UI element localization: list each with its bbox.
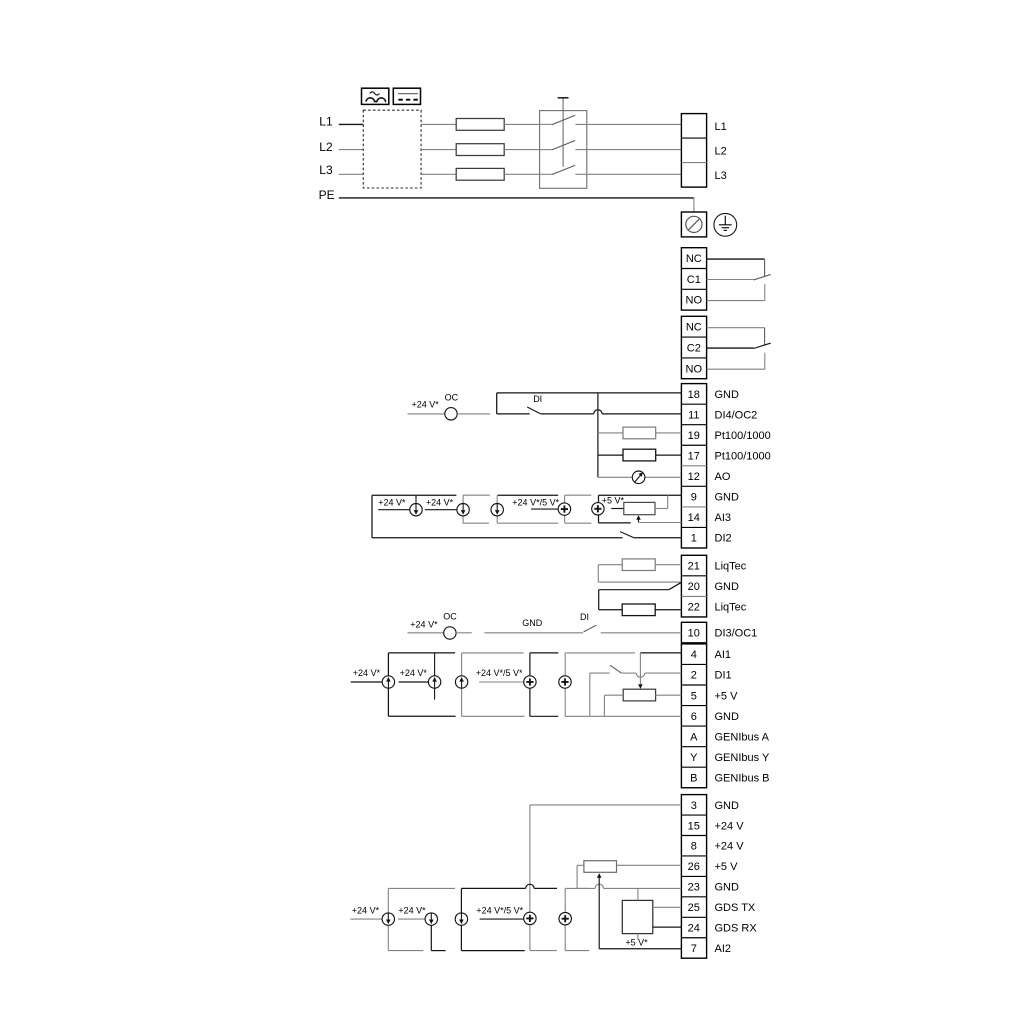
svg-text:AO: AO (715, 471, 731, 483)
svg-text:+24 V: +24 V (715, 841, 745, 853)
svg-text:L2: L2 (715, 145, 727, 157)
svg-text:17: 17 (688, 451, 700, 463)
svg-text:+24 V*: +24 V* (398, 905, 426, 915)
svg-text:25: 25 (688, 902, 700, 914)
svg-text:B: B (690, 773, 697, 785)
svg-text:4: 4 (691, 649, 697, 661)
svg-text:L1: L1 (319, 114, 333, 128)
svg-text:GDS TX: GDS TX (715, 902, 756, 914)
svg-text:7: 7 (691, 943, 697, 955)
svg-text:DI4/OC2: DI4/OC2 (715, 409, 758, 421)
svg-text:DI1: DI1 (715, 670, 732, 682)
svg-text:+5 V*: +5 V* (602, 495, 625, 505)
svg-text:+24 V*: +24 V* (412, 399, 440, 409)
svg-text:1: 1 (691, 533, 697, 545)
svg-text:LiqTec: LiqTec (715, 561, 747, 573)
svg-text:+24 V*: +24 V* (378, 497, 406, 507)
svg-text:L2: L2 (319, 140, 333, 154)
svg-text:Pt100/1000: Pt100/1000 (715, 451, 771, 463)
svg-text:GND: GND (715, 711, 740, 723)
svg-text:11: 11 (688, 409, 699, 421)
svg-text:AI3: AI3 (715, 512, 732, 524)
svg-text:NO: NO (686, 295, 703, 307)
svg-text:C1: C1 (687, 274, 701, 286)
svg-text:26: 26 (688, 861, 700, 873)
svg-text:A: A (690, 731, 698, 743)
svg-text:+5 V: +5 V (715, 690, 739, 702)
svg-text:5: 5 (691, 690, 697, 702)
svg-text:3: 3 (691, 800, 697, 812)
svg-text:NC: NC (686, 322, 702, 334)
svg-text:OC: OC (443, 611, 457, 621)
svg-text:NO: NO (686, 363, 703, 375)
svg-text:Y: Y (690, 752, 698, 764)
svg-text:NC: NC (686, 253, 702, 265)
svg-text:+24 V*: +24 V* (400, 668, 428, 678)
svg-text:L3: L3 (715, 170, 727, 182)
svg-text:AI1: AI1 (715, 649, 732, 661)
svg-text:OC: OC (445, 393, 459, 403)
svg-text:+5 V: +5 V (715, 861, 739, 873)
svg-text:AI2: AI2 (715, 943, 732, 955)
svg-text:DI: DI (533, 394, 542, 404)
svg-text:Pt100/1000: Pt100/1000 (715, 430, 771, 442)
svg-text:9: 9 (691, 492, 697, 504)
svg-text:DI: DI (580, 612, 589, 622)
svg-text:GND: GND (715, 882, 740, 894)
svg-text:19: 19 (688, 430, 700, 442)
svg-text:+24 V*/5 V*: +24 V*/5 V* (476, 668, 523, 678)
svg-text:24: 24 (688, 923, 700, 935)
svg-text:GND: GND (715, 492, 740, 504)
svg-text:22: 22 (688, 602, 700, 614)
svg-text:GND: GND (715, 581, 740, 593)
svg-text:GENIbus A: GENIbus A (715, 731, 770, 743)
svg-text:15: 15 (688, 820, 700, 832)
svg-text:LiqTec: LiqTec (715, 602, 747, 614)
svg-text:+24 V: +24 V (715, 820, 745, 832)
svg-text:18: 18 (688, 389, 700, 401)
svg-text:8: 8 (691, 841, 697, 853)
svg-text:DI2: DI2 (715, 533, 732, 545)
svg-text:+24 V*/5 V*: +24 V*/5 V* (476, 905, 523, 915)
svg-text:L1: L1 (715, 121, 727, 133)
svg-text:+24 V*: +24 V* (352, 905, 380, 915)
svg-text:+24 V*: +24 V* (353, 668, 381, 678)
svg-text:+24 V*: +24 V* (410, 620, 438, 630)
svg-text:23: 23 (688, 882, 700, 894)
svg-text:GDS RX: GDS RX (715, 923, 758, 935)
svg-text:L3: L3 (319, 163, 333, 177)
svg-text:GND: GND (715, 389, 740, 401)
svg-text:14: 14 (688, 512, 700, 524)
svg-text:6: 6 (691, 711, 697, 723)
svg-text:+24 V*/5 V*: +24 V*/5 V* (512, 497, 559, 507)
svg-text:C2: C2 (687, 343, 701, 355)
svg-text:21: 21 (688, 561, 700, 573)
svg-text:20: 20 (688, 581, 700, 593)
svg-text:GENIbus B: GENIbus B (715, 773, 770, 785)
svg-text:GND: GND (522, 618, 543, 628)
svg-text:+5 V*: +5 V* (625, 937, 648, 947)
svg-text:+24 V*: +24 V* (426, 497, 454, 507)
svg-text:DI3/OC1: DI3/OC1 (715, 628, 758, 640)
svg-text:GENIbus Y: GENIbus Y (715, 752, 770, 764)
svg-text:12: 12 (688, 471, 700, 483)
svg-text:10: 10 (688, 628, 700, 640)
svg-text:2: 2 (691, 670, 697, 682)
svg-text:PE: PE (319, 188, 335, 202)
svg-text:GND: GND (715, 800, 740, 812)
